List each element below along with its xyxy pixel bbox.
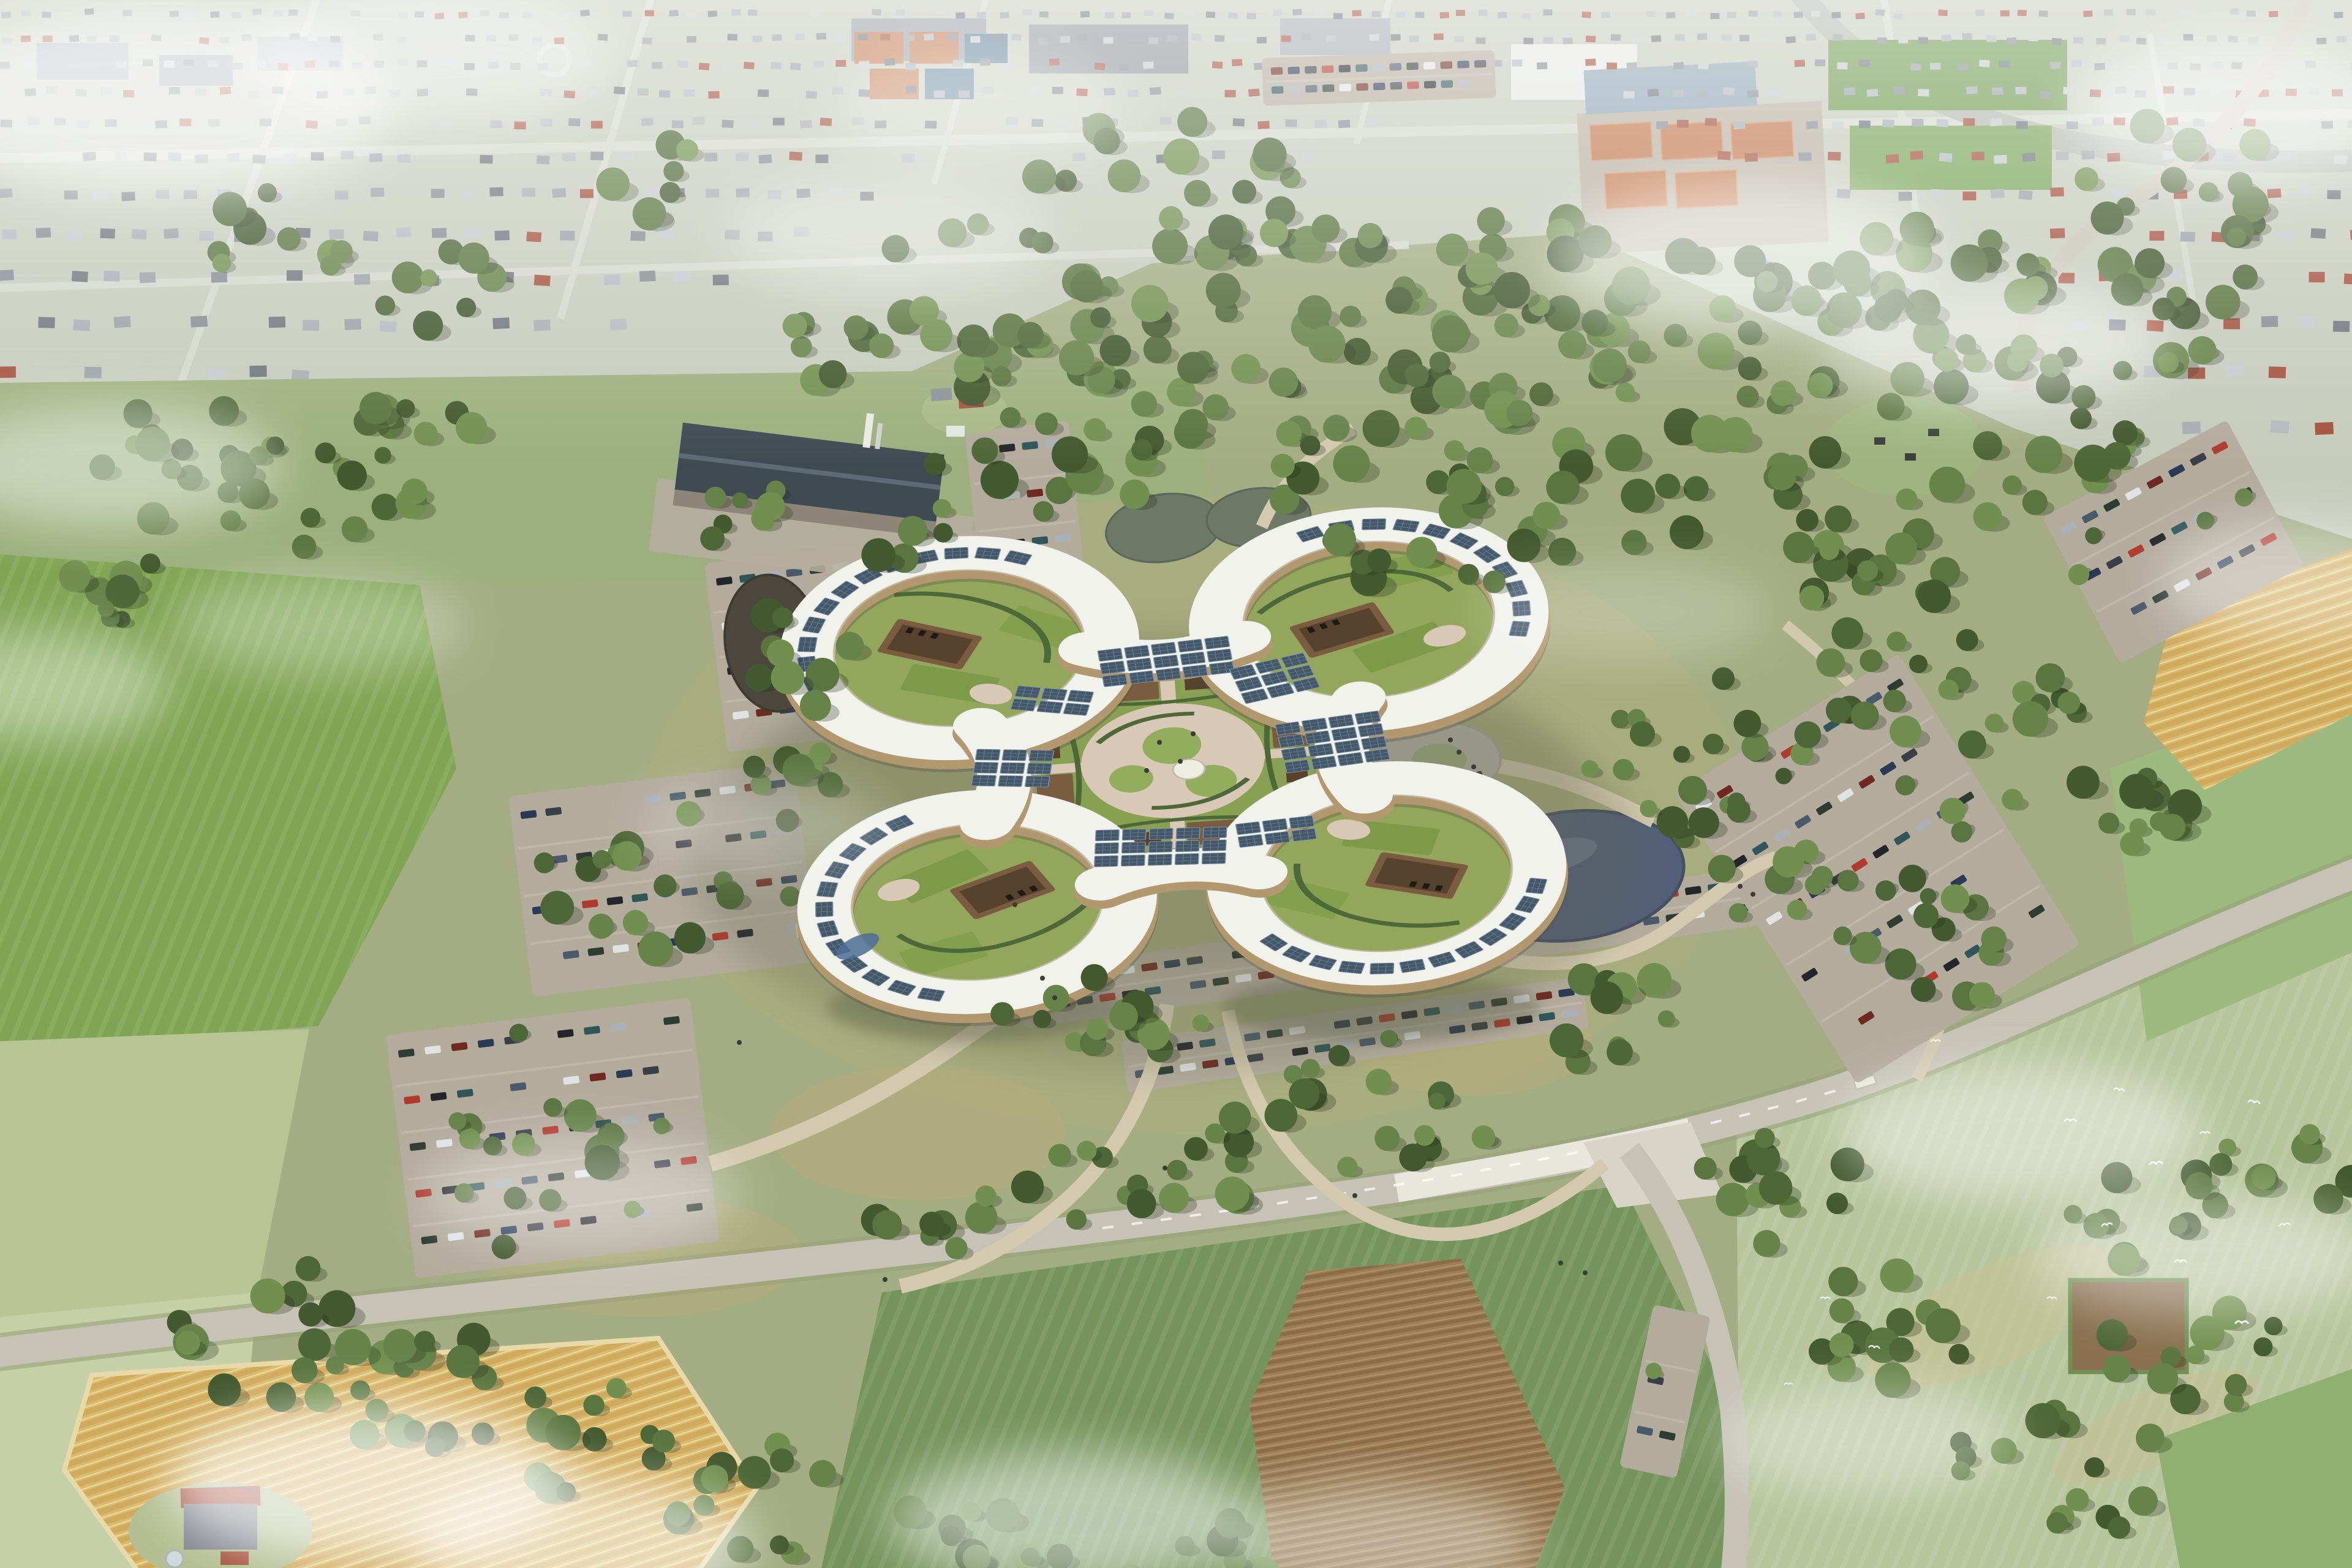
tree	[1826, 1193, 1848, 1214]
solar-panel	[998, 775, 1023, 786]
tree	[606, 1378, 627, 1398]
tree	[1926, 1308, 1961, 1343]
solar-panel-frame	[1011, 699, 1037, 711]
tree	[1860, 649, 1882, 672]
solar-panel	[1027, 763, 1052, 774]
solar-panel	[1176, 827, 1200, 839]
solar-panel-frame	[1002, 750, 1027, 761]
tree	[545, 1415, 581, 1450]
tree	[1406, 537, 1438, 568]
tree	[981, 461, 1019, 499]
tree	[1727, 799, 1751, 823]
tree	[772, 607, 793, 628]
tree	[1890, 715, 1921, 747]
cloud	[423, 1139, 741, 1249]
tree	[738, 1456, 771, 1488]
solar-panel-frame	[1202, 840, 1226, 851]
tree	[1800, 586, 1825, 611]
tree	[1948, 1344, 1969, 1365]
tree	[350, 1381, 370, 1400]
person	[1157, 740, 1162, 745]
tree	[1753, 1230, 1780, 1257]
tree	[1324, 523, 1357, 556]
solar-panel-frame	[1202, 853, 1226, 864]
tree	[1956, 629, 1978, 651]
tree	[298, 1329, 331, 1361]
solar-panel	[1202, 853, 1226, 864]
person	[1040, 976, 1045, 981]
tree	[2119, 774, 2154, 809]
solar-panel-frame	[1041, 688, 1068, 700]
tree	[2159, 814, 2185, 840]
tree	[1621, 530, 1646, 555]
tree	[59, 560, 91, 592]
tree	[1981, 926, 2007, 952]
tree	[1896, 488, 1917, 510]
tree	[1507, 529, 1541, 562]
tree	[770, 1536, 789, 1555]
person	[1558, 1261, 1563, 1265]
solar-panel	[1238, 834, 1263, 847]
solar-panel-frame	[1127, 658, 1152, 671]
tree	[1708, 855, 1736, 883]
solar-panel	[1207, 649, 1232, 661]
tree	[810, 742, 831, 764]
tree	[2057, 692, 2080, 714]
tree	[1857, 560, 1878, 581]
tree	[1768, 462, 1796, 491]
tree	[251, 1278, 285, 1313]
solar-panel-frame	[1289, 816, 1314, 829]
tree	[1081, 964, 1108, 991]
tree	[1264, 1099, 1297, 1132]
solar-panel	[1122, 829, 1146, 840]
solar-panel	[816, 902, 833, 917]
solar-panel-frame	[1183, 665, 1208, 677]
solar-panel-frame	[1095, 843, 1119, 854]
tree	[292, 535, 317, 559]
solar-panel-frame	[1027, 763, 1052, 774]
tree	[1973, 502, 2002, 531]
solar-panel-frame	[1235, 821, 1261, 834]
tree	[2036, 663, 2065, 693]
solar-panel	[1068, 690, 1094, 703]
person	[1012, 902, 1017, 907]
solar-panel-frame	[1203, 827, 1227, 838]
solar-panel	[1121, 842, 1145, 853]
tree	[1958, 731, 1986, 759]
tree	[1817, 649, 1845, 677]
cloud	[643, 784, 888, 870]
tree	[1049, 1144, 1071, 1166]
solar-panel	[944, 547, 968, 559]
tree	[2002, 789, 2023, 810]
solar-panel-frame	[1095, 856, 1118, 867]
tree	[1337, 1156, 1357, 1177]
solar-panel	[1292, 828, 1317, 841]
tree	[2225, 1374, 2247, 1396]
solar-panel	[1265, 831, 1290, 844]
person	[1352, 1193, 1357, 1198]
tree	[716, 881, 744, 909]
tree	[1472, 1125, 1496, 1149]
solar-panel-frame	[1063, 703, 1090, 715]
solar-panel-frame	[971, 775, 996, 786]
tree	[1712, 667, 1735, 690]
tree	[298, 1302, 322, 1326]
tree	[1426, 470, 1450, 494]
solar-panel	[1121, 855, 1145, 866]
tree	[1495, 477, 1515, 497]
pool	[166, 1550, 183, 1567]
tree	[2097, 1319, 2128, 1351]
tree	[1127, 1189, 1156, 1218]
tree	[1755, 1128, 1775, 1148]
solar-panel	[1095, 856, 1118, 867]
tree	[1367, 549, 1391, 573]
solar-panel-frame	[1156, 668, 1181, 680]
tree	[612, 841, 642, 870]
tree	[2209, 1153, 2232, 1175]
tree	[98, 600, 115, 617]
tree	[208, 1373, 241, 1406]
solar-panel-frame	[1098, 648, 1123, 661]
solar-panel-frame	[1175, 853, 1199, 864]
tree	[2067, 766, 2100, 799]
tree	[414, 1331, 435, 1352]
solar-panel-frame	[1029, 750, 1053, 761]
tree	[771, 661, 805, 695]
tree	[592, 850, 611, 869]
tree	[1759, 1171, 1793, 1205]
person	[1448, 737, 1453, 742]
solar-panel	[1127, 658, 1152, 671]
tree	[2120, 832, 2144, 856]
person	[1178, 759, 1183, 764]
solar-panel-frame	[944, 547, 968, 559]
tree	[2190, 1316, 2225, 1350]
solar-panel	[1262, 818, 1287, 831]
tree	[221, 510, 241, 531]
tree	[2026, 1403, 2060, 1438]
tree	[1167, 1160, 1187, 1180]
solar-panel-frame	[1149, 828, 1173, 839]
solar-panel-frame	[1265, 831, 1290, 844]
tree	[1613, 759, 1634, 780]
solar-panel	[1183, 665, 1208, 677]
solar-panel-frame	[1238, 834, 1263, 847]
solar-panel	[1235, 821, 1261, 834]
solar-panel-frame	[974, 548, 1000, 560]
solar-panel-frame	[973, 762, 998, 773]
tree	[1733, 710, 1761, 737]
tree	[1366, 1069, 1392, 1095]
tree	[1329, 1045, 1350, 1066]
solar-panel	[1180, 652, 1205, 665]
tree	[1192, 1015, 1209, 1032]
tree	[1825, 505, 1852, 532]
tree	[872, 1210, 902, 1240]
tree	[704, 486, 726, 508]
tree	[1819, 540, 1839, 560]
solar-panel	[1362, 519, 1386, 530]
solar-panel-frame	[1000, 763, 1025, 774]
solar-panel	[797, 637, 817, 652]
tree	[1301, 1059, 1320, 1078]
solar-panel	[1175, 853, 1199, 864]
solar-panel-frame	[1338, 961, 1365, 974]
tree	[1033, 501, 1054, 522]
tree	[1289, 1079, 1319, 1109]
tree	[1883, 690, 1906, 712]
solar-panel	[1095, 843, 1119, 854]
tree	[701, 1465, 728, 1493]
tree	[335, 1329, 371, 1365]
tree	[342, 516, 367, 542]
tree	[1795, 722, 1822, 748]
tree	[1532, 502, 1560, 529]
tree	[1120, 480, 1149, 509]
tree	[700, 526, 725, 551]
tree	[743, 756, 765, 778]
tree	[1880, 1259, 1914, 1292]
tree	[1684, 476, 1709, 501]
solar-panel	[1205, 636, 1230, 649]
tree	[564, 1099, 597, 1132]
solar-panel	[1037, 701, 1063, 713]
tree	[1546, 470, 1579, 503]
tree	[543, 1098, 562, 1117]
tree	[2252, 1165, 2276, 1189]
tree	[448, 1112, 466, 1130]
tree	[1939, 679, 1959, 699]
solar-panel	[1338, 961, 1365, 974]
solar-panel-frame	[1292, 828, 1317, 841]
solar-panel	[1102, 674, 1128, 687]
tree	[1885, 532, 1917, 564]
tree	[292, 1357, 318, 1384]
tree	[638, 932, 673, 967]
tree	[2128, 1487, 2158, 1516]
tree	[1215, 1177, 1249, 1211]
solar-panel-frame	[1068, 690, 1094, 703]
tree	[1184, 1137, 1208, 1161]
person	[1144, 768, 1149, 773]
tree	[1889, 1337, 1914, 1362]
solar-panel	[1041, 688, 1068, 700]
tree	[800, 690, 831, 721]
solar-panel-frame	[1176, 827, 1200, 839]
person	[1163, 1166, 1167, 1170]
tree	[1811, 866, 1833, 888]
tree	[1728, 903, 1747, 922]
tree	[1066, 1209, 1087, 1229]
solar-panel	[976, 749, 1000, 760]
tree	[1640, 800, 1657, 817]
tree	[540, 891, 574, 924]
solar-panel-frame	[1393, 519, 1420, 532]
solar-panel-frame	[1178, 639, 1203, 652]
tree	[1703, 734, 1724, 755]
tree	[861, 538, 895, 572]
farm-shed	[221, 1551, 249, 1565]
tree	[1911, 977, 1936, 1002]
tree	[1833, 927, 1852, 945]
solar-panel	[1148, 854, 1172, 865]
tree	[459, 1128, 480, 1149]
tree	[1655, 473, 1680, 499]
solar-panel-frame	[1037, 701, 1063, 713]
tree	[1678, 776, 1707, 805]
tree	[1773, 846, 1804, 878]
tree	[2264, 1317, 2283, 1335]
solar-panel-frame	[1148, 854, 1172, 865]
tree	[1607, 1039, 1633, 1066]
tree	[1828, 1267, 1858, 1296]
tree	[1550, 1023, 1584, 1058]
person	[1191, 731, 1196, 736]
tree	[783, 754, 815, 786]
solar-panel	[1129, 671, 1154, 684]
tree	[1621, 479, 1655, 513]
tree	[401, 478, 428, 505]
solar-panel	[1011, 699, 1037, 711]
solar-panel-frame	[1205, 636, 1230, 649]
solar-panel-frame	[1121, 855, 1145, 866]
cloud	[1838, 1066, 2205, 1200]
tree	[2002, 475, 2022, 495]
solar-panel	[1178, 639, 1203, 652]
tree	[1851, 701, 1879, 729]
tree	[1658, 1010, 1675, 1027]
solar-panel	[1149, 828, 1173, 839]
tree	[372, 494, 399, 521]
tree	[2046, 1512, 2068, 1534]
tree	[1458, 564, 1479, 585]
tree	[809, 1460, 836, 1487]
solar-panel-frame	[1151, 642, 1176, 655]
solar-panel-frame	[1175, 840, 1199, 851]
solar-panel	[973, 762, 998, 773]
solar-panel	[1203, 827, 1227, 838]
person	[737, 1040, 742, 1045]
person	[1583, 1270, 1588, 1275]
tree	[301, 508, 320, 527]
solar-panel	[1063, 703, 1090, 715]
solar-panel	[1156, 668, 1181, 680]
tree	[266, 1382, 296, 1412]
tree	[1033, 1010, 1052, 1028]
tree	[756, 492, 785, 521]
solar-panel	[1370, 963, 1394, 974]
tree	[1909, 655, 1928, 673]
person	[1751, 892, 1755, 897]
tree	[1694, 1157, 1717, 1180]
tree	[2313, 1184, 2343, 1214]
tree	[975, 1185, 996, 1206]
tree	[933, 499, 952, 518]
tree	[836, 632, 864, 660]
tree	[1380, 1030, 1398, 1047]
tree	[176, 1330, 200, 1355]
solar-panel	[1015, 686, 1041, 698]
person	[1457, 750, 1461, 755]
solar-panel-frame	[998, 775, 1023, 786]
solar-panel-frame	[1129, 671, 1154, 684]
tree	[1796, 509, 1819, 532]
tree	[447, 1345, 480, 1378]
tree	[770, 1449, 794, 1472]
solar-panel	[1098, 648, 1123, 661]
tree	[1689, 807, 1719, 838]
haze-veil	[0, 0, 2352, 466]
cloud	[1476, 563, 1770, 661]
solar-panel	[1000, 763, 1025, 774]
tree	[2013, 701, 2048, 737]
solar-panel-frame	[1122, 829, 1146, 840]
tree	[1985, 714, 2004, 733]
solar-panel	[1175, 840, 1199, 851]
tree	[1548, 538, 1576, 565]
tree	[1399, 1144, 1427, 1171]
tree	[945, 1237, 967, 1259]
tree	[652, 1430, 675, 1452]
tree	[1917, 579, 1951, 613]
tree	[1716, 1183, 1750, 1216]
tree	[1787, 900, 1807, 920]
tree	[2253, 1337, 2272, 1356]
solar-panel	[1100, 661, 1125, 674]
solar-panel-frame	[1362, 519, 1386, 530]
tree	[1414, 1125, 1435, 1146]
tree	[2084, 1457, 2105, 1477]
tree	[1826, 698, 1852, 723]
aerial-rendering	[0, 0, 2352, 1568]
solar-panel-frame	[1148, 841, 1172, 852]
solar-panel	[1148, 841, 1172, 852]
tree	[1969, 982, 1995, 1008]
tree	[1830, 1298, 1855, 1324]
solar-panel	[1002, 750, 1027, 761]
tree	[1428, 1093, 1445, 1109]
tree	[933, 523, 953, 543]
solar-panel	[1029, 750, 1053, 761]
person	[1738, 884, 1743, 889]
solar-panel	[1153, 655, 1178, 668]
tree	[1447, 469, 1482, 503]
solar-panel-frame	[797, 637, 817, 652]
tree	[383, 1329, 417, 1362]
solar-panel	[1025, 776, 1049, 787]
cloud	[1721, 1384, 2015, 1494]
tree	[1837, 870, 1858, 891]
tree	[296, 1256, 321, 1281]
solar-panel-frame	[1015, 686, 1041, 698]
solar-panel-frame	[1025, 776, 1049, 787]
tree	[1611, 710, 1629, 728]
aerial-rendering-stage	[0, 0, 2352, 1568]
solar-panel	[1393, 519, 1420, 532]
solar-panel-frame	[1125, 645, 1150, 658]
solar-panel	[1151, 642, 1176, 655]
solar-panel-frame	[976, 749, 1000, 760]
solar-panel-frame	[1102, 674, 1128, 687]
solar-panel	[974, 548, 1000, 560]
solar-panel-frame	[1095, 830, 1119, 841]
tree	[1086, 1018, 1108, 1040]
solar-panel-frame	[1370, 963, 1394, 974]
tree	[919, 1212, 944, 1236]
